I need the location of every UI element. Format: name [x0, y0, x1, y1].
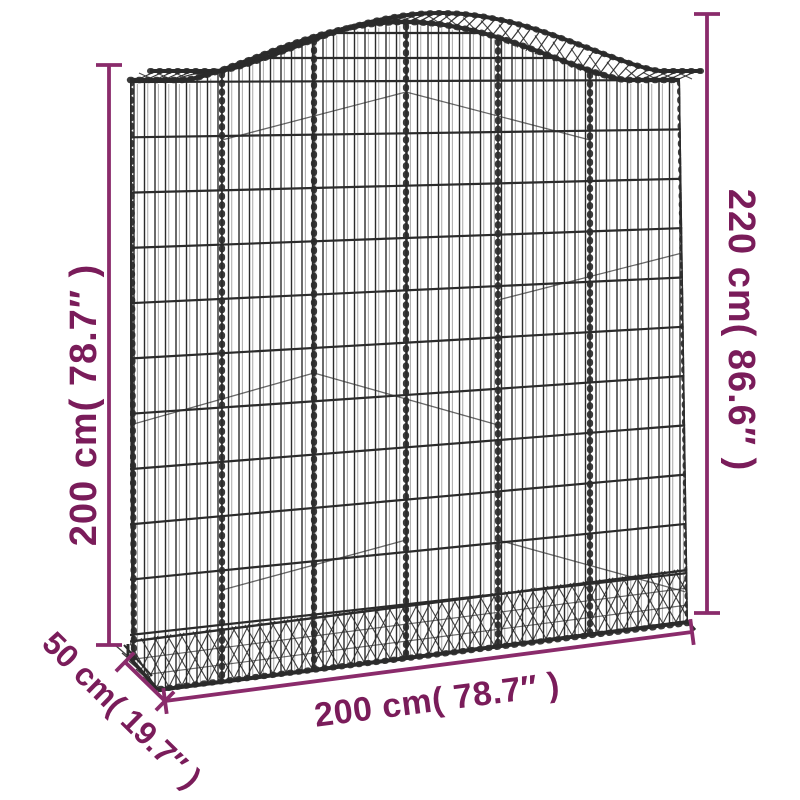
horizontal-wire	[130, 277, 688, 303]
dimension-total-height	[694, 14, 720, 613]
right-edge-coil	[680, 82, 688, 622]
floor-hatch	[687, 564, 717, 624]
floor-hatch	[388, 607, 418, 659]
floor-hatch	[362, 610, 392, 662]
floor-hatch	[622, 577, 652, 629]
floor-hatch	[271, 622, 301, 674]
floor-hatch	[232, 627, 262, 679]
floor-hatch	[336, 613, 366, 665]
floor-hatch	[440, 600, 470, 652]
floor-hatch	[414, 603, 444, 655]
floor-hatch	[284, 620, 314, 672]
floor-hatch	[375, 608, 405, 660]
horizontal-wire	[130, 179, 688, 193]
side-height-label: 200 cm( 78.7″ )	[63, 264, 105, 546]
front-mesh	[128, 20, 717, 696]
depth-label: 50 cm( 19.7″ )	[35, 624, 208, 795]
floor-hatch	[349, 612, 379, 664]
floor-hatch	[505, 592, 535, 644]
floor-hatch	[453, 598, 483, 650]
floor-hatch	[167, 635, 197, 687]
floor-hatch	[258, 623, 288, 675]
gabion-dimension-diagram: 200 cm( 78.7″ ) 220 cm( 86.6″ ) 200 cm( …	[0, 0, 800, 800]
floor-hatch	[648, 573, 678, 625]
floor-hatch	[557, 585, 587, 637]
floor-hatch	[609, 578, 639, 630]
floor-hatch	[531, 588, 561, 640]
floor-hatch	[180, 633, 210, 685]
total-height-label: 220 cm( 86.6″ )	[720, 189, 762, 471]
floor-hatch	[596, 580, 626, 632]
left-edge-coil	[131, 82, 134, 658]
horizontal-wire	[130, 474, 688, 524]
floor-hatch	[323, 615, 353, 667]
floor-hatch	[544, 587, 574, 639]
basket-illustration	[115, 13, 717, 696]
